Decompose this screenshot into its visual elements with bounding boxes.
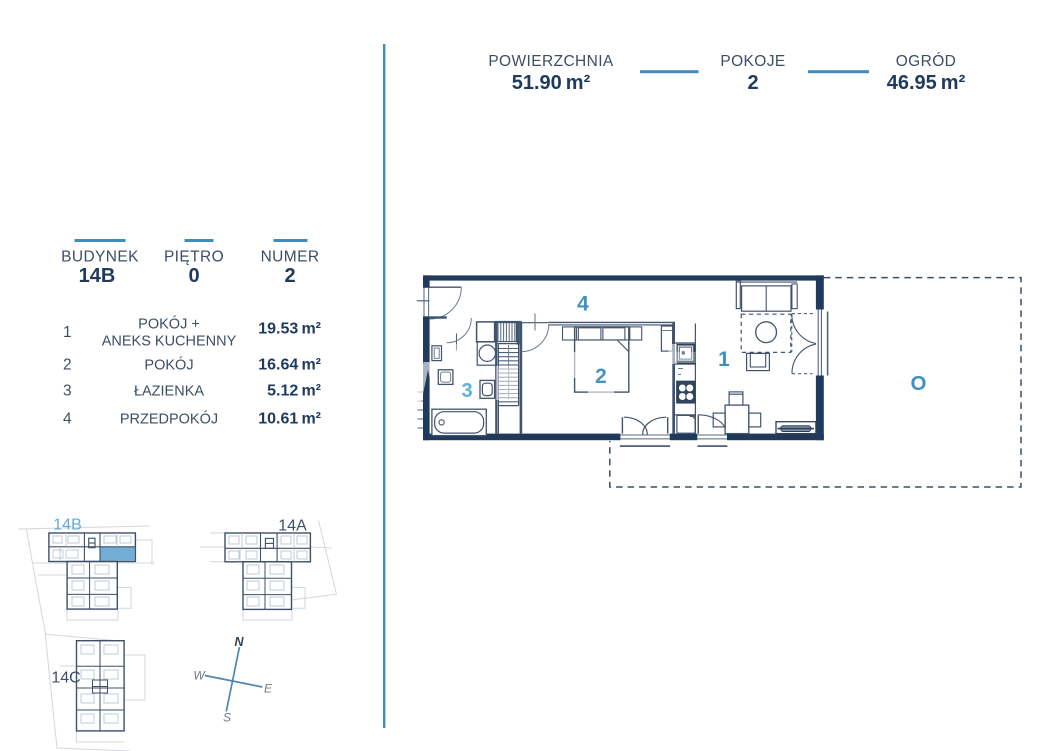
svg-text:19.53 m²: 19.53 m² [258,321,321,338]
svg-text:E: E [264,682,273,696]
svg-text:0: 0 [188,265,199,287]
svg-text:O: O [911,372,927,395]
svg-text:16.64 m²: 16.64 m² [258,357,321,374]
svg-text:2: 2 [595,365,607,388]
svg-text:PIĘTRO: PIĘTRO [164,249,224,266]
svg-text:NUMER: NUMER [261,249,320,266]
svg-text:10.61 m²: 10.61 m² [258,411,321,428]
svg-text:1: 1 [718,348,730,371]
svg-text:14B: 14B [79,265,116,287]
svg-text:14A: 14A [278,518,307,535]
svg-text:1: 1 [63,324,72,341]
svg-text:PRZEDPOKÓJ: PRZEDPOKÓJ [120,411,218,428]
svg-text:3: 3 [63,383,72,400]
svg-text:14B: 14B [53,517,81,534]
svg-text:POKÓJ: POKÓJ [144,357,193,374]
svg-text:POKOJE: POKOJE [720,53,785,70]
svg-text:POWIERZCHNIA: POWIERZCHNIA [488,53,614,70]
svg-text:5.12 m²: 5.12 m² [267,383,321,400]
svg-text:51.90 m²: 51.90 m² [512,72,591,94]
svg-text:POKÓJ +: POKÓJ + [138,316,200,333]
svg-text:ŁAZIENKA: ŁAZIENKA [134,384,204,400]
svg-text:4: 4 [577,293,589,316]
svg-text:2: 2 [63,357,72,374]
svg-text:BUDYNEK: BUDYNEK [61,249,139,266]
svg-text:W: W [193,669,206,683]
svg-text:3: 3 [461,380,472,402]
svg-text:N: N [234,635,244,649]
svg-text:OGRÓD: OGRÓD [896,53,957,70]
svg-text:2: 2 [284,265,295,287]
svg-text:ANEKS KUCHENNY: ANEKS KUCHENNY [102,334,237,350]
svg-text:2: 2 [747,72,758,94]
svg-text:S: S [223,711,231,725]
svg-text:46.95 m²: 46.95 m² [887,72,966,94]
svg-text:4: 4 [63,411,72,428]
